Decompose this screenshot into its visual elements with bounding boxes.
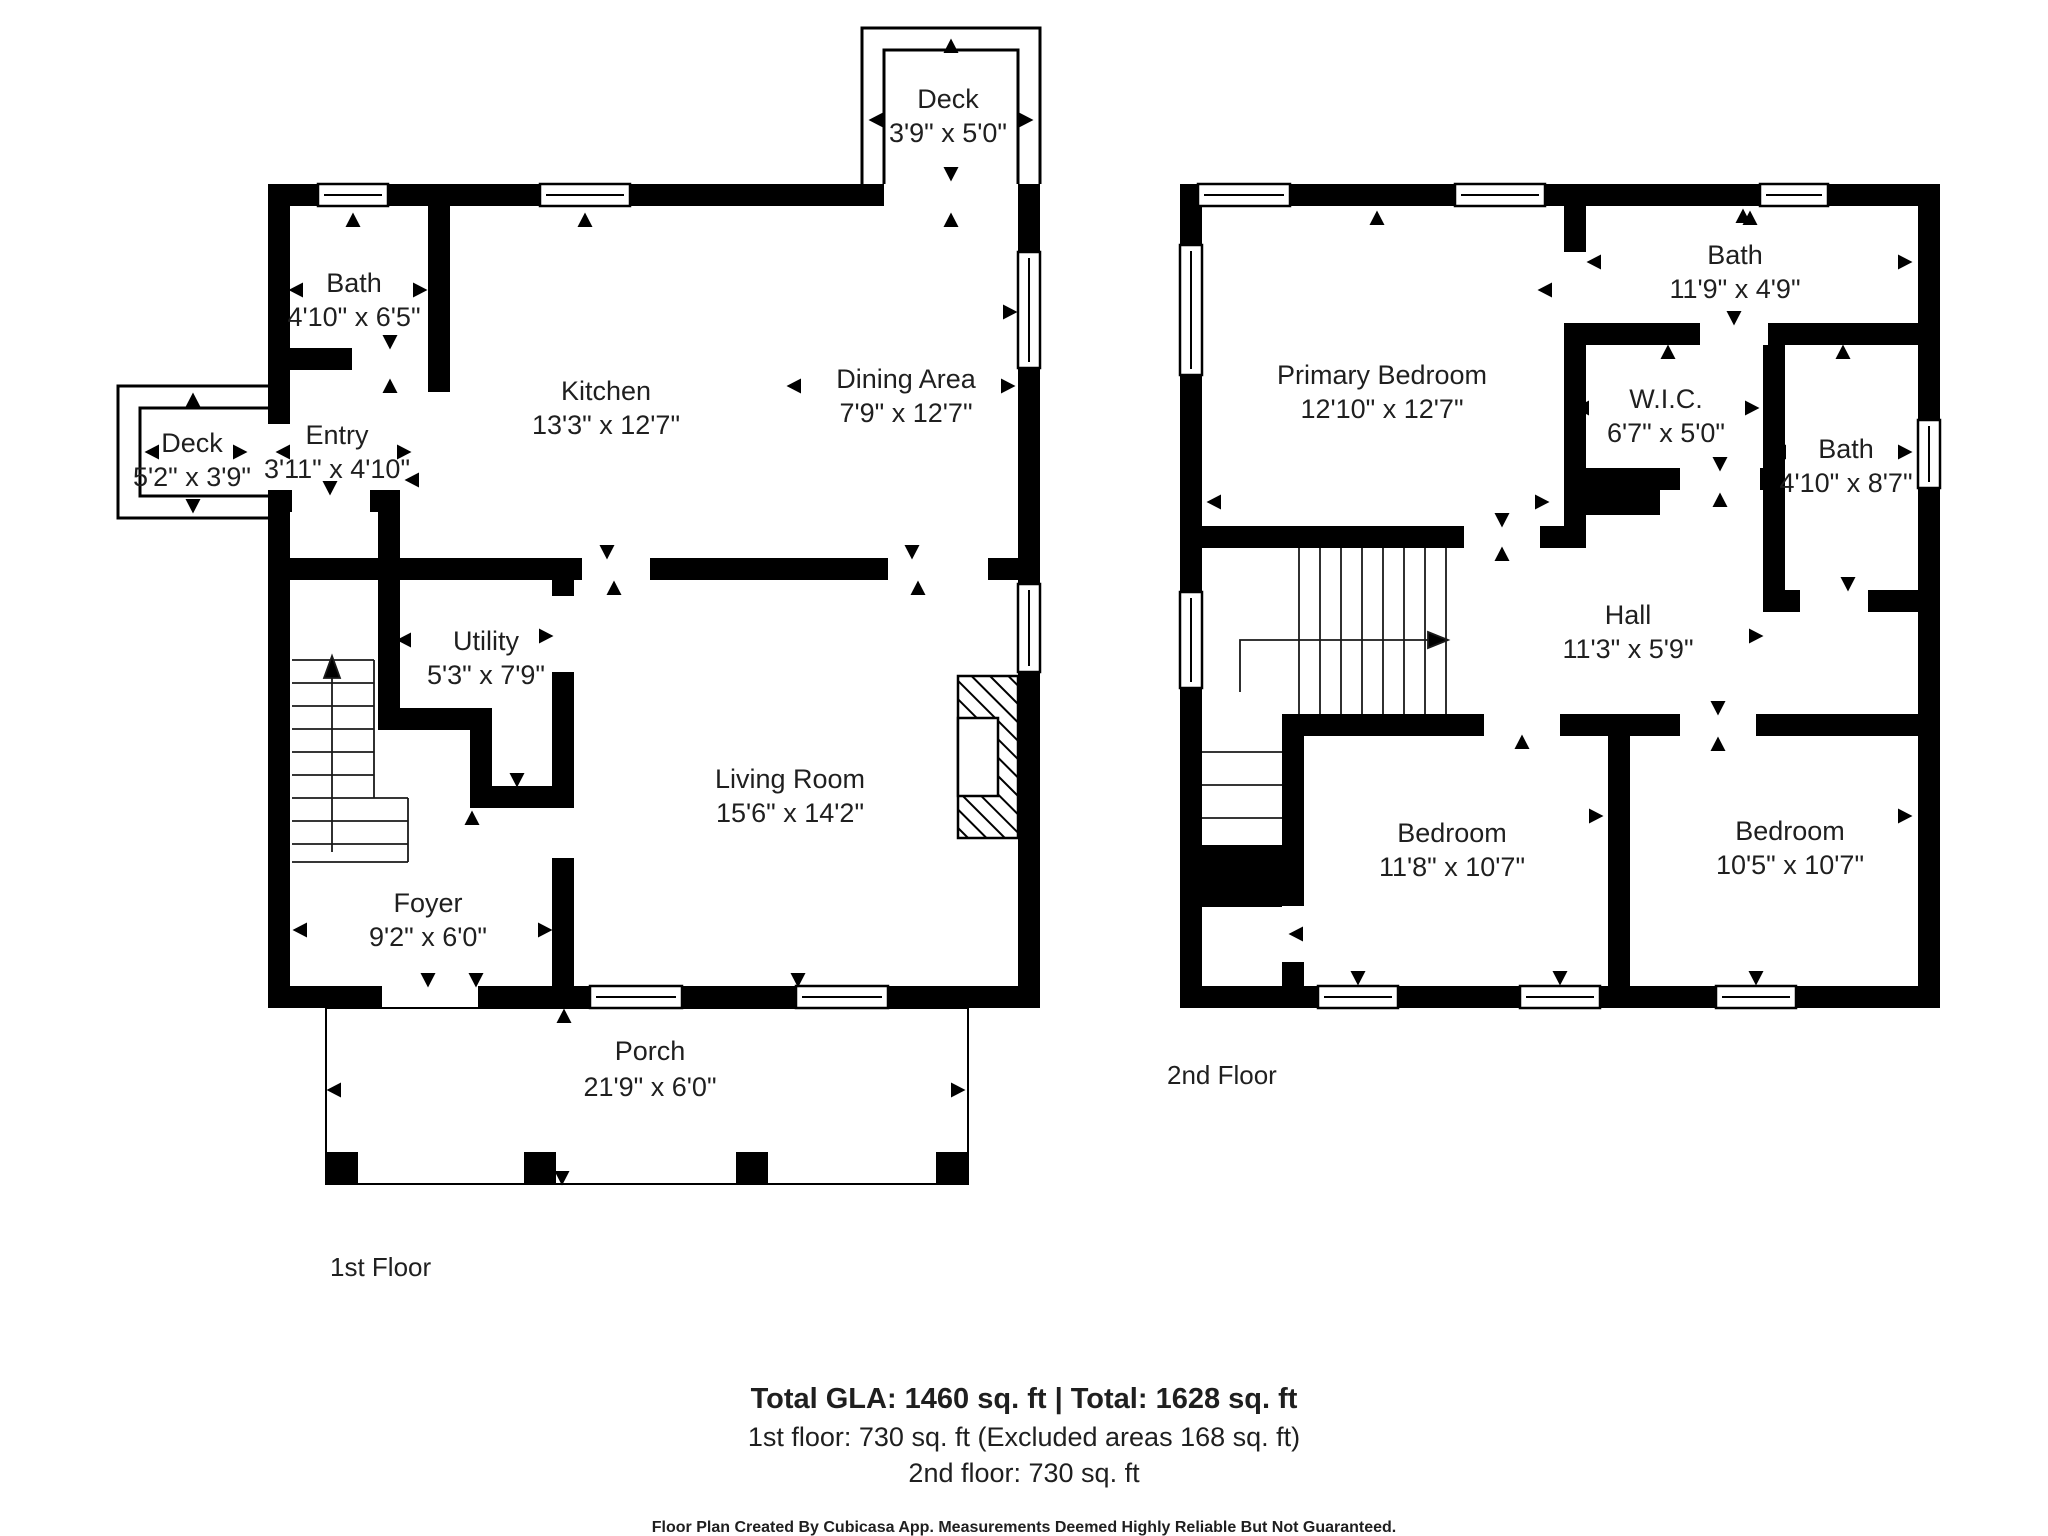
- room-dims-primary-bedroom: 12'10" x 12'7": [1300, 394, 1463, 424]
- window: [1018, 584, 1040, 672]
- window: [1180, 592, 1202, 688]
- room-dims-wic: 6'7" x 5'0": [1607, 418, 1725, 448]
- window: [1760, 184, 1828, 206]
- second-floor-label: 2nd Floor: [1167, 1060, 1277, 1090]
- first-floor-label: 1st Floor: [330, 1252, 431, 1282]
- chimney-box: [1564, 468, 1660, 515]
- total-gla-text: Total GLA: 1460 sq. ft | Total: 1628 sq.…: [751, 1383, 1298, 1415]
- porch-post: [936, 1152, 968, 1184]
- window: [540, 184, 630, 206]
- room-name-kitchen: Kitchen: [561, 376, 651, 406]
- room-name-bath-top: Bath: [1707, 240, 1763, 270]
- second-floor-stairs: [1202, 548, 1448, 818]
- room-dims-porch: 21'9" x 6'0": [583, 1072, 716, 1102]
- window: [1018, 252, 1040, 368]
- porch-post: [736, 1152, 768, 1184]
- room-name-wic: W.I.C.: [1629, 384, 1703, 414]
- room-dims-utility: 5'3" x 7'9": [427, 660, 545, 690]
- porch-post: [524, 1152, 556, 1184]
- second-floor-walls: [1180, 184, 1940, 1008]
- summary-footer: Total GLA: 1460 sq. ft | Total: 1628 sq.…: [652, 1383, 1396, 1536]
- room-dims-living: 15'6" x 14'2": [716, 798, 864, 828]
- second-floor-area-text: 2nd floor: 730 sq. ft: [908, 1458, 1140, 1488]
- room-name-bedroom-left: Bedroom: [1397, 818, 1507, 848]
- window: [1455, 184, 1545, 206]
- room-name-foyer: Foyer: [393, 888, 462, 918]
- room-dims-bath-top: 11'9" x 4'9": [1669, 274, 1800, 304]
- room-dims-hall: 11'3" x 5'9": [1562, 634, 1693, 664]
- window: [1918, 420, 1940, 488]
- first-floor: Deck 3'9" x 5'0" Bath 4'10" x 6'5" Deck …: [118, 28, 1040, 1282]
- second-floor: Primary Bedroom 12'10" x 12'7" Bath 11'9…: [1167, 184, 1940, 1090]
- second-floor-labels: Primary Bedroom 12'10" x 12'7" Bath 11'9…: [1167, 240, 1913, 1090]
- disclaimer-text: Floor Plan Created By Cubicasa App. Meas…: [652, 1519, 1396, 1536]
- window: [1520, 986, 1600, 1008]
- room-name-living: Living Room: [715, 764, 865, 794]
- stairs-direction-arrow: [1428, 632, 1448, 648]
- window: [1318, 986, 1398, 1008]
- chimney-box: [1202, 845, 1282, 907]
- room-dims-kitchen: 13'3" x 12'7": [532, 410, 680, 440]
- room-name-deck-top: Deck: [917, 84, 979, 114]
- room-dims-deck-top: 3'9" x 5'0": [889, 118, 1007, 148]
- window: [796, 986, 888, 1008]
- room-name-bath: Bath: [326, 268, 382, 298]
- room-name-primary-bedroom: Primary Bedroom: [1277, 360, 1487, 390]
- room-name-porch: Porch: [615, 1036, 686, 1066]
- room-dims-bedroom-left: 11'8" x 10'7": [1379, 852, 1525, 882]
- room-name-deck-left: Deck: [161, 428, 223, 458]
- window: [1180, 245, 1202, 375]
- room-name-bath-right: Bath: [1818, 434, 1874, 464]
- room-name-entry: Entry: [305, 420, 369, 450]
- room-dims-deck-left: 5'2" x 3'9": [133, 462, 251, 492]
- window: [1716, 986, 1796, 1008]
- window: [590, 986, 682, 1008]
- first-floor-windows: [318, 184, 1040, 1008]
- floor-plan-canvas: Deck 3'9" x 5'0" Bath 4'10" x 6'5" Deck …: [0, 0, 2048, 1536]
- window: [1198, 184, 1290, 206]
- porch-post: [326, 1152, 358, 1184]
- room-name-hall: Hall: [1605, 600, 1652, 630]
- fireplace: [958, 676, 1018, 838]
- room-name-dining: Dining Area: [836, 364, 977, 394]
- room-dims-bath: 4'10" x 6'5": [287, 302, 420, 332]
- room-dims-dining: 7'9" x 12'7": [839, 398, 972, 428]
- room-name-bedroom-right: Bedroom: [1735, 816, 1845, 846]
- room-dims-foyer: 9'2" x 6'0": [369, 922, 487, 952]
- room-dims-bedroom-right: 10'5" x 10'7": [1716, 850, 1864, 880]
- floor-plan-page: Deck 3'9" x 5'0" Bath 4'10" x 6'5" Deck …: [0, 0, 2048, 1536]
- window: [318, 184, 388, 206]
- room-dims-entry: 3'11" x 4'10": [264, 454, 410, 484]
- first-floor-area-text: 1st floor: 730 sq. ft (Excluded areas 16…: [748, 1422, 1300, 1452]
- room-dims-bath-right: 4'10" x 8'7": [1779, 468, 1912, 498]
- room-name-utility: Utility: [453, 626, 519, 656]
